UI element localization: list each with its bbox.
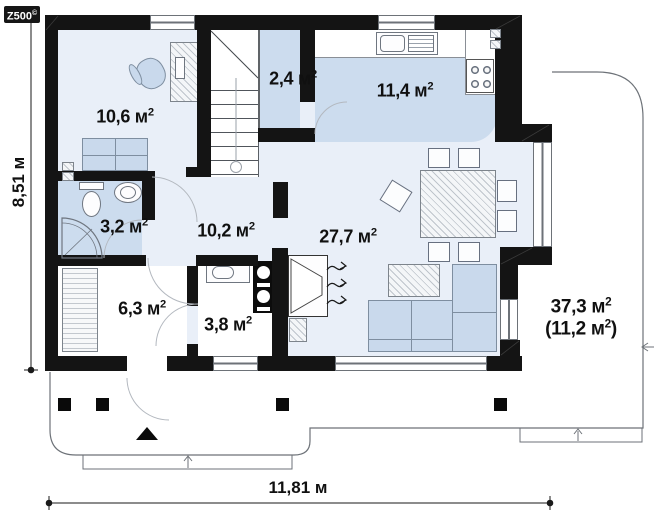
floor-plan: 10,6 м2 2,4 м2 11,4 м2 3,2 м2 10,2 м2 27… bbox=[0, 0, 655, 521]
room-label-hall: 10,2 м2 bbox=[197, 221, 254, 242]
door-arcs bbox=[104, 102, 347, 420]
fireplace-heat-arrows-icon bbox=[327, 262, 346, 304]
door-arc-entrance bbox=[127, 378, 169, 420]
door-arc-cabinet bbox=[152, 177, 197, 222]
door-arc-entry-hall bbox=[148, 258, 194, 304]
shower-icon bbox=[62, 218, 102, 258]
terrace-label-line1: 37,3 м2 bbox=[551, 295, 612, 318]
terrace-outline bbox=[50, 72, 643, 455]
z500-logo: Z500© bbox=[4, 6, 40, 23]
dimension-height-label: 8,51 м bbox=[9, 151, 29, 213]
room-label-boiler: 3,8 м2 bbox=[204, 315, 252, 336]
terrace-label-line2: (11,2 м2) bbox=[545, 317, 617, 340]
terrace-entry-arrow-icon bbox=[642, 343, 654, 351]
room-label-kitchen: 11,4 м2 bbox=[377, 81, 433, 102]
room-label-entry: 6,3 м2 bbox=[118, 299, 166, 320]
steps-arrow-icon bbox=[574, 429, 582, 441]
steps-arrow-icon bbox=[184, 456, 192, 468]
room-label-bathroom: 3,2 м2 bbox=[100, 217, 148, 238]
stairs-walk-start bbox=[231, 162, 242, 173]
plan-linework bbox=[0, 0, 655, 521]
room-label-pantry: 2,4 м2 bbox=[269, 69, 317, 90]
dimension-width-label: 11,81 м bbox=[240, 478, 356, 498]
stairs-cut-line bbox=[211, 31, 258, 78]
door-arc-pantry bbox=[315, 102, 347, 134]
room-label-living: 27,7 м2 bbox=[319, 227, 376, 248]
terrace-steps bbox=[520, 428, 642, 442]
room-label-cabinet: 10,6 м2 bbox=[96, 107, 153, 128]
fireplace-funnel bbox=[291, 259, 322, 313]
